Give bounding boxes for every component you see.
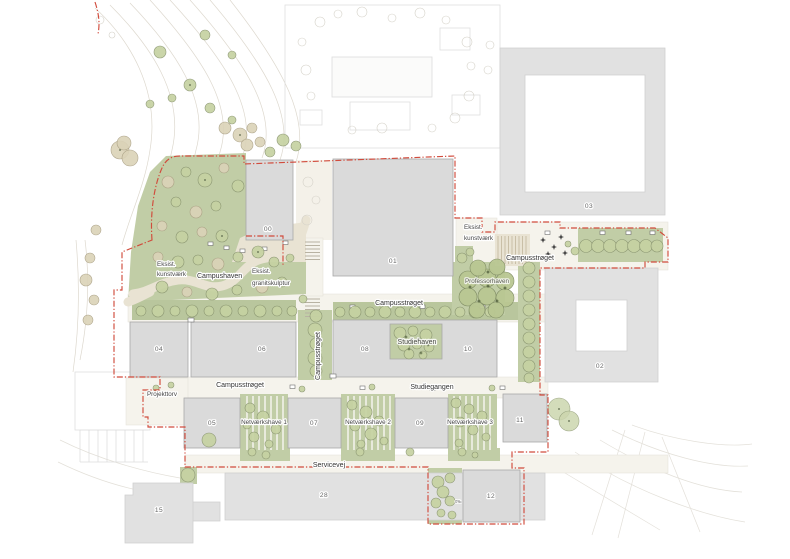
- building-12-label: 12: [487, 493, 495, 500]
- building-03-label: 03: [585, 203, 593, 210]
- building-07-label: 07: [310, 420, 318, 427]
- studiegangen-label: Studiegangen: [410, 384, 453, 391]
- building-09-label: 09: [416, 420, 424, 427]
- projekttorv-label: Projekttorv: [147, 391, 178, 398]
- site-plan: Eksist. kunstværk Campushaven Eksist. gr…: [0, 0, 790, 559]
- eksist-kunstvaerk-west-label-line2: kunstværk: [157, 271, 187, 278]
- netvaerkshave1-label: Netværkshave 1: [241, 419, 287, 426]
- building-03: [500, 48, 665, 215]
- building-11-label: 11: [516, 417, 524, 424]
- netvaerkshave3-label: Netværkshave 3: [447, 419, 493, 426]
- building-11: [503, 394, 547, 442]
- eksist-kunstvaerk-northeast-label-line1: Eksist.: [464, 224, 483, 231]
- campusstroget-label-southwest: Campusstrøget: [216, 382, 264, 389]
- eksist-kunstvaerk-northeast-label-line2: kunstværk: [464, 235, 494, 242]
- eksist-granitskulptur-label-line2: granitskulptur: [252, 280, 290, 287]
- building-05-label: 05: [208, 420, 216, 427]
- professorhaven-label: Professorhaven: [465, 278, 510, 285]
- context-trees: [96, 7, 494, 134]
- building-15: [125, 483, 220, 543]
- site-plan-drawing: Eksist. kunstværk Campushaven Eksist. gr…: [0, 0, 790, 559]
- building-02-label: 02: [596, 363, 604, 370]
- slope-label: 0‰: [455, 499, 462, 504]
- campusstroget-label-vertical: Campusstrøget: [315, 332, 322, 380]
- building-06-label: 06: [258, 346, 266, 353]
- building-00-label: 00: [264, 226, 272, 233]
- studiehaven-label: Studiehaven: [398, 339, 437, 346]
- building-01-label: 01: [389, 258, 397, 265]
- campusstroget-label-center: Campusstrøget: [375, 300, 423, 307]
- building-15-label: 15: [155, 507, 163, 514]
- netvaerkshave2-label: Netværkshave 2: [345, 419, 391, 426]
- green-south2: [341, 448, 395, 461]
- campusstroget-label-northeast: Campusstrøget: [506, 255, 554, 262]
- building-28-label: 28: [320, 492, 328, 499]
- building-04-label: 04: [155, 346, 163, 353]
- parking-stalls: [80, 430, 148, 462]
- eksist-granitskulptur-label-line1: Eksist.: [252, 268, 271, 275]
- campushaven-label: Campushaven: [197, 273, 242, 280]
- trees-east-strip: [523, 262, 535, 383]
- building-10-label: 10: [464, 346, 472, 353]
- eksist-kunstvaerk-west-label-line1: Eksist.: [157, 261, 176, 268]
- building-06: [191, 322, 296, 377]
- building-08-label: 08: [361, 346, 369, 353]
- servicevej-label: Servicevej: [313, 462, 346, 469]
